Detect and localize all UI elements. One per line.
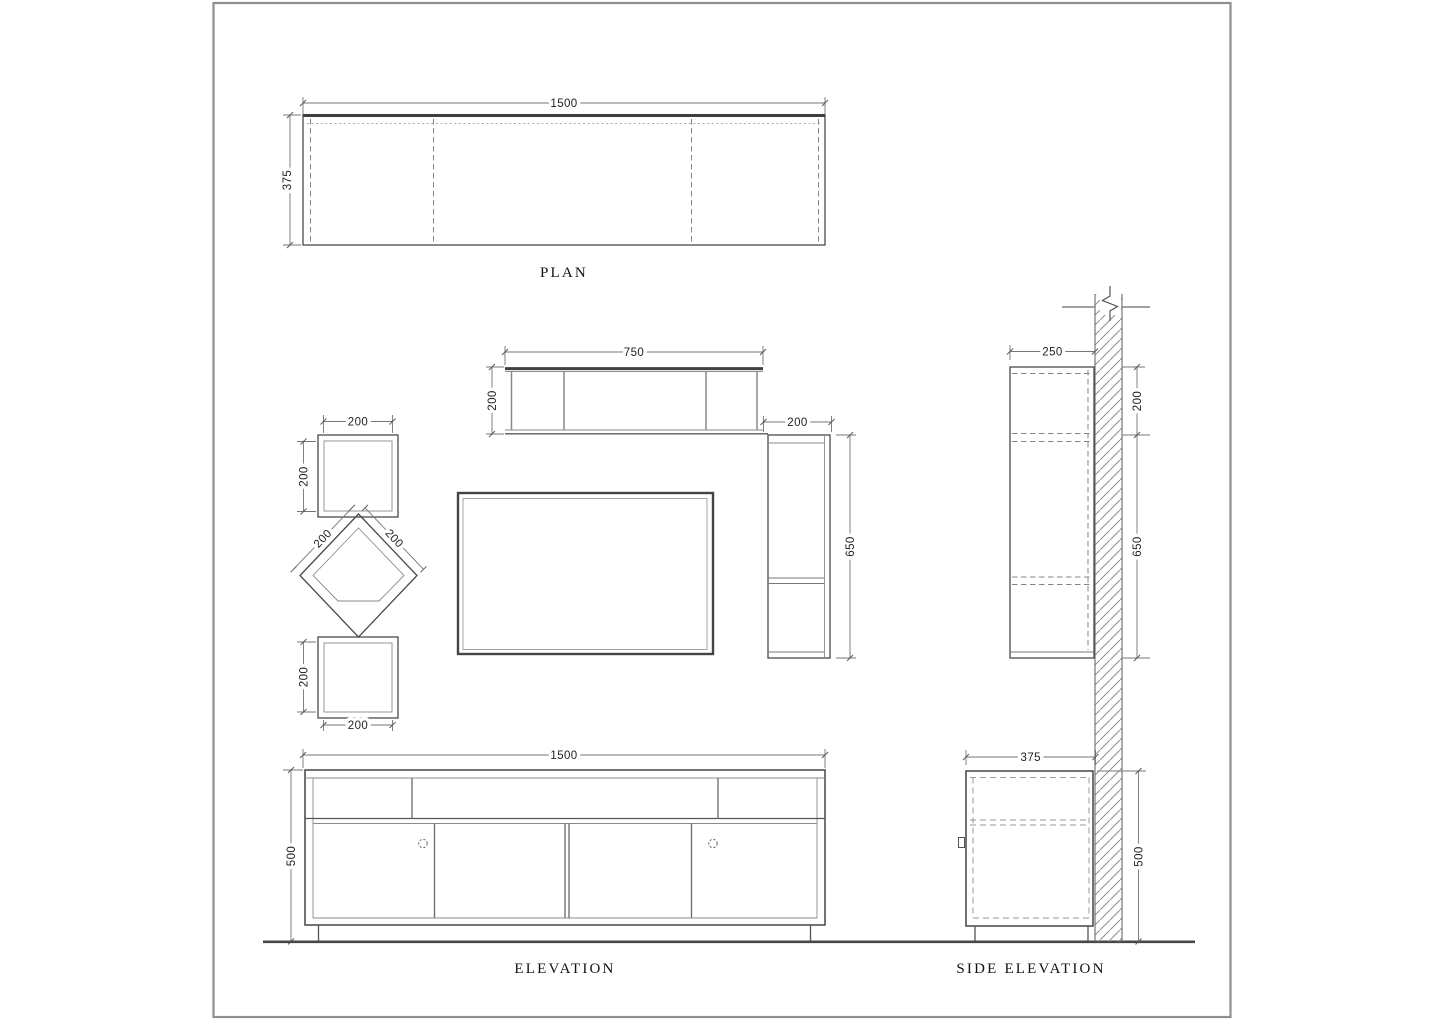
wall-hatch bbox=[1095, 294, 1122, 942]
side-dim-cabinet-depth: 375 bbox=[1021, 752, 1041, 764]
door-handle-left bbox=[419, 839, 427, 847]
side-plinth bbox=[975, 926, 1088, 942]
plan-title: PLAN bbox=[540, 265, 588, 281]
square-shelf-bottom: 200 200 bbox=[297, 637, 398, 732]
side-elevation-title: SIDE ELEVATION bbox=[956, 961, 1105, 977]
tall-unit: 200 650 bbox=[761, 416, 858, 661]
tv-cabinet: 1500 500 bbox=[283, 749, 828, 945]
plan-outline bbox=[303, 115, 825, 245]
shelf-dim-width: 750 bbox=[624, 347, 644, 359]
side-door-handle bbox=[959, 838, 965, 848]
plan-partition-dashed bbox=[311, 119, 819, 243]
tv-panel bbox=[458, 493, 713, 654]
side-dim-unit-height: 650 bbox=[1132, 536, 1144, 556]
square-top-dim-width: 200 bbox=[348, 417, 368, 429]
shelf-dim-height: 200 bbox=[487, 390, 499, 410]
square-bottom-dim-width: 200 bbox=[348, 720, 368, 732]
side-elevation-view: 250 200 650 375 500 SIDE ELEVATION bbox=[956, 286, 1150, 977]
drawer-dividers bbox=[412, 778, 718, 819]
cabinet-plinth bbox=[319, 925, 811, 941]
door-handle-right bbox=[709, 839, 717, 847]
side-dim-shelf-depth: 250 bbox=[1042, 347, 1062, 359]
elevation-title: ELEVATION bbox=[514, 961, 615, 977]
side-dim-shelf-height: 200 bbox=[1132, 391, 1144, 411]
drawing-canvas: 1500 375 PLAN 750 200 200 650 bbox=[0, 0, 1445, 1020]
plan-view: 1500 375 PLAN bbox=[282, 97, 828, 281]
side-dim-cabinet-height: 500 bbox=[1134, 846, 1146, 866]
elevation-view: 750 200 200 650 200 200 bbox=[283, 346, 857, 977]
tall-unit-dim-width: 200 bbox=[787, 417, 807, 429]
square-shelf-top: 200 200 bbox=[297, 415, 398, 517]
drawing-sheet: 1500 375 PLAN 750 200 200 650 bbox=[0, 0, 1445, 1020]
plan-dim-depth: 375 bbox=[282, 170, 294, 190]
cabinet-dim-height: 500 bbox=[286, 846, 298, 866]
tall-unit-dim-height: 650 bbox=[845, 536, 857, 556]
plan-dim-width: 1500 bbox=[550, 98, 577, 110]
door-dividers bbox=[435, 824, 692, 919]
upper-unit-side: 250 200 650 bbox=[1007, 345, 1150, 661]
wall-shelf: 750 200 bbox=[486, 346, 768, 437]
square-bottom-dim-height: 200 bbox=[299, 667, 311, 687]
diamond-shelf: 200 200 bbox=[291, 505, 427, 637]
page-border bbox=[214, 3, 1231, 1017]
cabinet-dim-width: 1500 bbox=[550, 750, 577, 762]
square-top-dim-height: 200 bbox=[299, 466, 311, 486]
